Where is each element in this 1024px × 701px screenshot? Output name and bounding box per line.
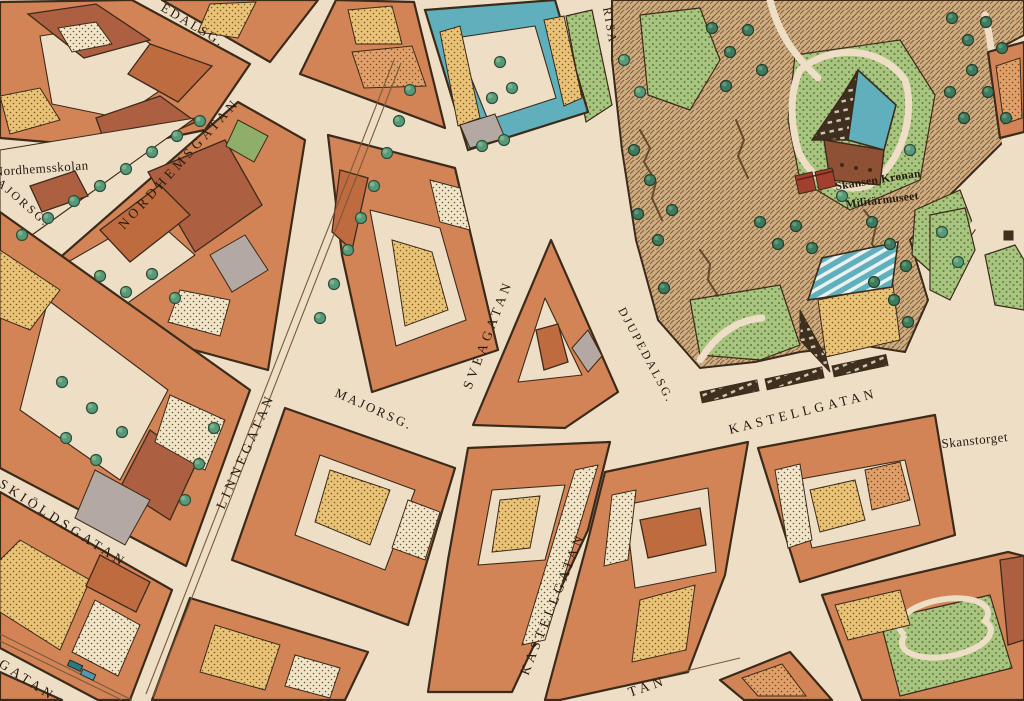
city-map-canvas: EDALSG. NORDHEMSGATAN Nordhemsskolan AJO…	[0, 0, 1024, 701]
map-drawing: EDALSG. NORDHEMSGATAN Nordhemsskolan AJO…	[0, 0, 1024, 701]
